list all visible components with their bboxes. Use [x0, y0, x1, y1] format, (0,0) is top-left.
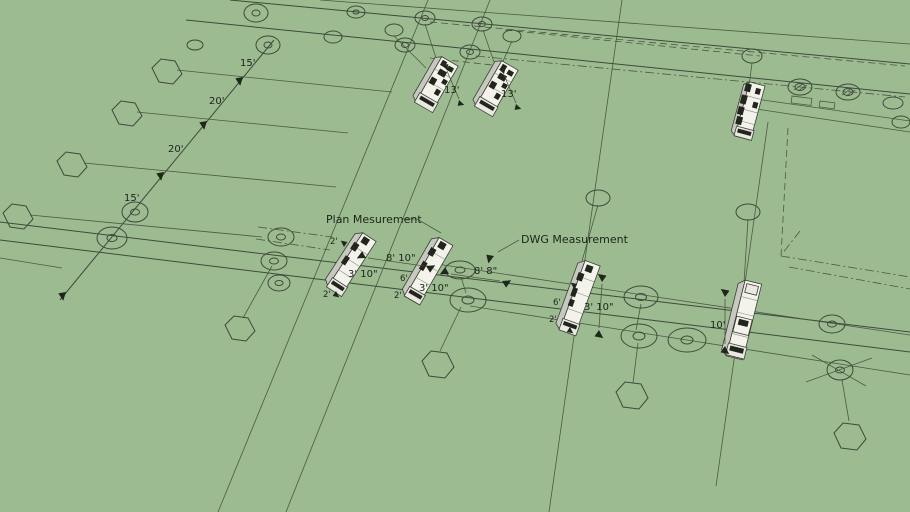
- survey-marker: [503, 30, 521, 42]
- trucks: [322, 54, 766, 360]
- plan-measurement-label: Plan Mesurement: [326, 213, 422, 226]
- survey-marker: [385, 24, 403, 36]
- grid-dim-label: 15': [124, 193, 139, 204]
- target-marker: [445, 261, 475, 279]
- dwg-measurement-label: DWG Measurement: [521, 233, 629, 246]
- dwg-callout-leader: [498, 240, 519, 252]
- survey-marker: [395, 38, 415, 52]
- target-marker: [256, 36, 280, 54]
- dim-label-small: 6': [400, 274, 408, 284]
- hexagon-marker: [152, 59, 182, 84]
- dim-label-small: 2': [323, 290, 331, 300]
- target-marker: [122, 202, 148, 222]
- dim-label-gap-dwg: 8' 8": [474, 266, 497, 277]
- dim-label-small: 6': [553, 298, 561, 308]
- dim-label-top-truck-1: 13': [444, 85, 459, 96]
- target-marker: [450, 288, 486, 312]
- dim-label-truck-b-width: 3' 10": [419, 283, 449, 294]
- site-plan-canvas[interactable]: 15' 20' 20' 15': [0, 0, 910, 512]
- target-marker: [97, 227, 127, 249]
- hexagon-marker: [834, 423, 866, 450]
- survey-marker: [883, 97, 903, 109]
- survey-marker: [460, 45, 480, 59]
- target-marker: [244, 4, 268, 22]
- dim-label-small: 2': [394, 291, 402, 301]
- viewport-3d[interactable]: 15' 20' 20' 15': [0, 0, 910, 512]
- survey-marker: [736, 204, 760, 220]
- dim-label-gap-plan: 8' 10": [386, 253, 416, 264]
- dim-label-small: 2': [549, 315, 557, 325]
- truck-model[interactable]: [554, 258, 601, 335]
- grid-dim-label: 15': [240, 58, 255, 69]
- hexagon-marker: [112, 101, 142, 126]
- hexagon-marker: [57, 152, 87, 177]
- site-linework: [0, 0, 910, 512]
- target-marker: [268, 275, 290, 291]
- truck-model[interactable]: [471, 58, 520, 117]
- hexagon-marker: [225, 316, 255, 341]
- survey-marker: [586, 190, 610, 206]
- hexagon-marker: [422, 351, 454, 378]
- survey-marker: [892, 116, 910, 128]
- target-marker: [268, 228, 294, 246]
- truck-model[interactable]: [730, 81, 766, 141]
- survey-marker: [187, 40, 203, 50]
- dim-label-truck-d-length: 10': [710, 320, 725, 331]
- hexagon-marker: [616, 382, 648, 409]
- grid-dim-label: 20': [209, 96, 224, 107]
- grid-dim-label: 20': [168, 144, 183, 155]
- dim-label-top-truck-2: 13': [501, 89, 516, 100]
- truck-model[interactable]: [411, 54, 460, 113]
- dim-label-truck-c-width: 3' 10": [584, 302, 614, 313]
- survey-marker: [324, 31, 342, 43]
- dim-label-truck-a-width: 3' 10": [348, 269, 378, 280]
- target-marker: [621, 324, 657, 348]
- dim-label-small: 2': [330, 237, 338, 247]
